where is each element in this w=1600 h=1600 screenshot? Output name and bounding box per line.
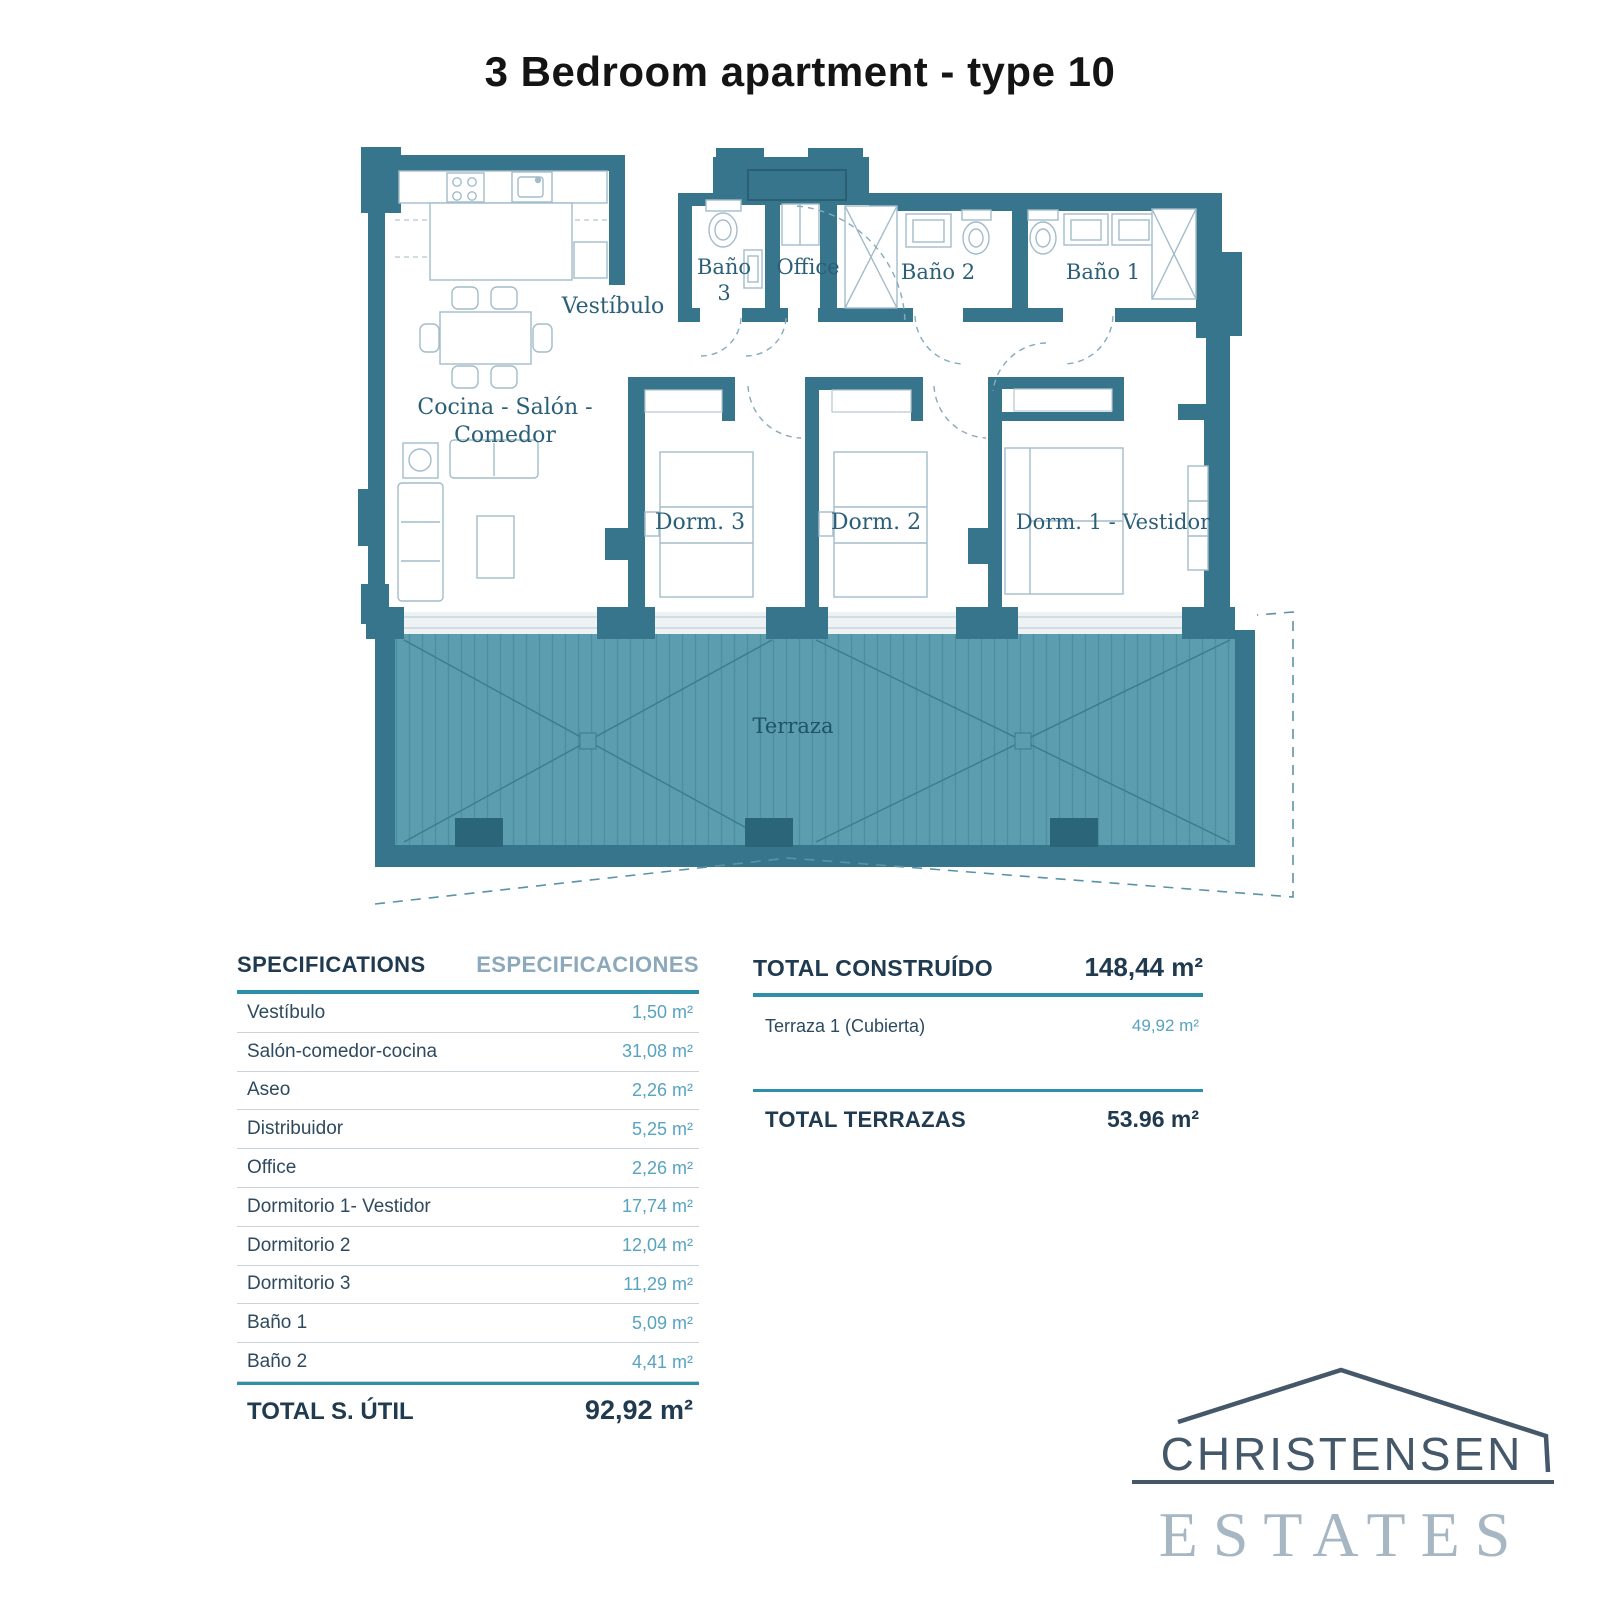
row-value: 2,26 m²	[632, 1080, 693, 1101]
table-row: Dormitorio 1- Vestidor 17,74 m²	[237, 1188, 699, 1227]
dining-table	[420, 287, 552, 388]
total-util-row: TOTAL S. ÚTIL 92,92 m²	[237, 1382, 699, 1426]
christensen-estates-logo: CHRISTENSEN ESTATES	[1118, 1356, 1566, 1581]
table-row: Vestíbulo 1,50 m²	[237, 994, 699, 1033]
label-bano3-num: 3	[717, 281, 730, 305]
label-office: Office	[776, 255, 839, 279]
table-row: Baño 1 5,09 m²	[237, 1304, 699, 1343]
table-row: Aseo 2,26 m²	[237, 1072, 699, 1111]
floor-plan: Vestíbulo Baño 3 Office Baño 2 Baño 1 Co…	[0, 0, 1600, 945]
table-row: Office 2,26 m²	[237, 1149, 699, 1188]
label-bano1: Baño 1	[1066, 260, 1140, 284]
label-bano2: Baño 2	[901, 260, 975, 284]
row-value: 5,09 m²	[632, 1313, 693, 1334]
office-cabinet	[782, 204, 819, 245]
row-value: 17,74 m²	[622, 1196, 693, 1217]
stove-icon	[447, 173, 484, 202]
closets	[645, 389, 1112, 412]
sink-icon	[512, 172, 552, 202]
label-dorm2: Dorm. 2	[831, 510, 921, 535]
sofa-set	[398, 440, 538, 601]
specifications-table: SPECIFICATIONS ESPECIFICACIONES Vestíbul…	[237, 952, 699, 1426]
row-label: Vestíbulo	[247, 1002, 325, 1024]
total-terrazas-row: TOTAL TERRAZAS 53.96 m²	[753, 1089, 1203, 1133]
logo-line1: CHRISTENSEN	[1161, 1428, 1524, 1480]
row-label: Dormitorio 1- Vestidor	[247, 1196, 431, 1218]
row-label: Office	[247, 1157, 296, 1179]
row-value: 5,25 m²	[632, 1119, 693, 1140]
bathroom1-fixtures	[1028, 209, 1196, 299]
total-util-label: TOTAL S. ÚTIL	[247, 1398, 414, 1426]
total-util-value: 92,92 m²	[585, 1395, 693, 1426]
label-bano3: Baño	[697, 255, 751, 279]
label-dorm3: Dorm. 3	[655, 510, 745, 535]
table-row: Dormitorio 3 11,29 m²	[237, 1266, 699, 1305]
terrace-deck	[375, 630, 1255, 867]
row-value: 2,26 m²	[632, 1158, 693, 1179]
terraza-value: 49,92 m²	[1132, 1016, 1199, 1036]
total-construido-label: TOTAL CONSTRUÍDO	[753, 955, 993, 982]
row-label: Baño 1	[247, 1312, 307, 1334]
spacer	[753, 1043, 1203, 1089]
total-terrazas-value: 53.96 m²	[1107, 1106, 1199, 1133]
label-cocina-line2: Comedor	[454, 423, 556, 448]
total-construido-row: TOTAL CONSTRUÍDO 148,44 m²	[753, 952, 1203, 997]
specifications-header-en: SPECIFICATIONS	[237, 952, 426, 978]
label-vestibulo: Vestíbulo	[561, 294, 665, 319]
row-label: Salón-comedor-cocina	[247, 1041, 437, 1063]
specifications-header-es: ESPECIFICACIONES	[476, 952, 699, 978]
logo-underline	[1132, 1480, 1554, 1484]
row-label: Distribuidor	[247, 1118, 343, 1140]
table-row: Dormitorio 2 12,04 m²	[237, 1227, 699, 1266]
label-dorm1: Dorm. 1 - Vestidor	[1016, 510, 1211, 534]
row-label: Aseo	[247, 1079, 290, 1101]
row-value: 1,50 m²	[632, 1002, 693, 1023]
row-value: 31,08 m²	[622, 1041, 693, 1062]
bathroom2-fixtures	[845, 206, 991, 308]
terraza-label: Terraza 1 (Cubierta)	[765, 1016, 925, 1037]
row-label: Dormitorio 2	[247, 1235, 350, 1257]
label-terraza: Terraza	[753, 714, 834, 738]
row-value: 11,29 m²	[623, 1274, 693, 1295]
total-terrazas-label: TOTAL TERRAZAS	[765, 1107, 966, 1133]
total-construido-value: 148,44 m²	[1084, 952, 1203, 983]
terraza-row: Terraza 1 (Cubierta) 49,92 m²	[753, 997, 1203, 1043]
logo-line2: ESTATES	[1159, 1499, 1526, 1570]
row-label: Dormitorio 3	[247, 1273, 350, 1295]
row-label: Baño 2	[247, 1351, 307, 1373]
row-value: 4,41 m²	[632, 1352, 693, 1373]
totals-table: TOTAL CONSTRUÍDO 148,44 m² Terraza 1 (Cu…	[753, 952, 1203, 1133]
row-value: 12,04 m²	[622, 1235, 693, 1256]
kitchen-counter	[399, 171, 607, 280]
table-row: Salón-comedor-cocina 31,08 m²	[237, 1033, 699, 1072]
table-row: Baño 2 4,41 m²	[237, 1343, 699, 1382]
label-cocina-line1: Cocina - Salón -	[417, 395, 592, 420]
table-row: Distribuidor 5,25 m²	[237, 1110, 699, 1149]
specifications-header: SPECIFICATIONS ESPECIFICACIONES	[237, 952, 699, 994]
